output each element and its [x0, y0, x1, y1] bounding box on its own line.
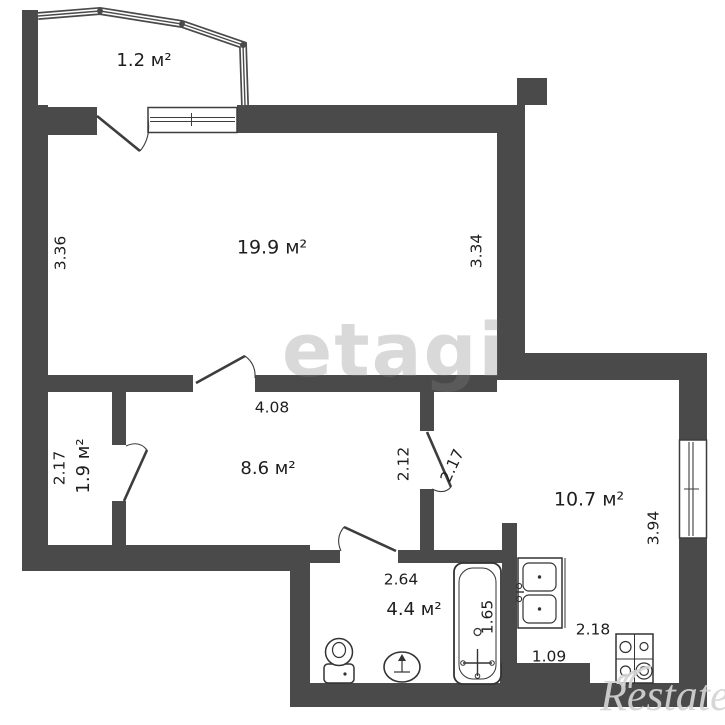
closet-door	[124, 444, 147, 501]
pedestal-sink	[384, 652, 420, 682]
kitchen-dim-bottom: 2.18	[576, 622, 611, 638]
living-dim-left: 3.36	[53, 236, 69, 271]
bathroom-dim-top: 2.64	[384, 572, 419, 588]
bathroom-area-label: 4.4 м²	[386, 601, 441, 619]
toilet	[324, 639, 354, 684]
balcony-door	[97, 116, 149, 151]
closet-area-label: 1.9 м²	[75, 438, 93, 493]
bathroom-door	[339, 527, 396, 551]
floor-plan: 1.2 м² 19.9 м² 3.36 3.34 4.08 8.6 м² 2.1…	[0, 0, 725, 725]
balcony-area-label: 1.2 м²	[116, 52, 171, 70]
kitchen-dim-right: 3.94	[646, 511, 662, 546]
kitchen-dim-step: 1.09	[532, 649, 567, 665]
kitchen-sink	[516, 558, 565, 628]
bathroom-dim-tub: 1.65	[480, 600, 496, 635]
kitchen-area-label: 10.7 м²	[554, 491, 624, 510]
watermark-restate: Restate	[600, 674, 725, 718]
hallway-area-label: 8.6 м²	[240, 460, 295, 478]
watermark-etagi: etagi	[282, 314, 506, 388]
living-room-window	[148, 108, 237, 133]
kitchen-window	[680, 440, 707, 538]
living-area-label: 19.9 м²	[237, 239, 307, 258]
living-dim-right: 3.34	[469, 234, 485, 269]
living-room-door	[196, 356, 255, 383]
closet-dim-left: 2.17	[52, 451, 68, 486]
hallway-dim-right: 2.12	[396, 447, 412, 482]
hallway-dim-top: 4.08	[255, 400, 290, 416]
